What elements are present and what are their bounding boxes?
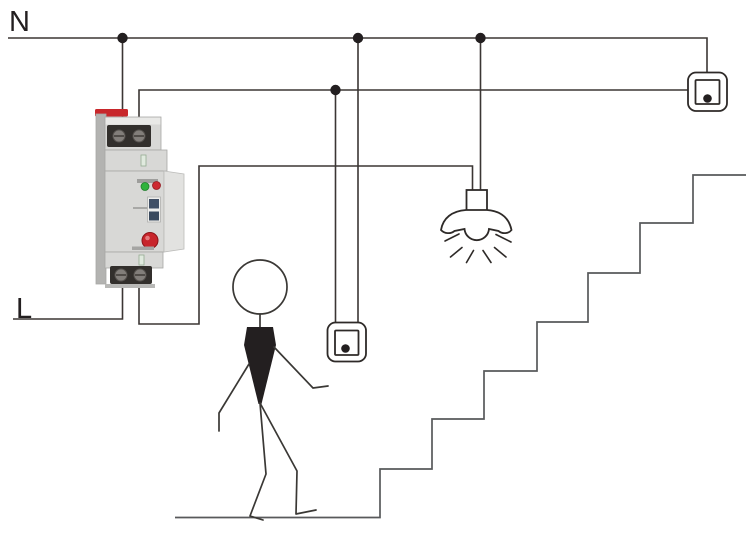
line-label: L — [16, 293, 32, 325]
person-arm-right — [274, 347, 328, 388]
pendant-lamp-icon — [441, 190, 512, 263]
button-highlight — [145, 236, 150, 241]
red-test-button — [142, 233, 158, 249]
vent-slot-bottom — [139, 255, 144, 265]
button-dot — [703, 94, 712, 103]
green-led-icon — [141, 183, 149, 191]
diagram-canvas: N L — [0, 0, 750, 535]
junction-dot-switch-neutral — [353, 33, 363, 43]
device-base-lip — [105, 284, 155, 288]
mode-slider-knob-lower — [149, 212, 159, 221]
neutral-label: N — [9, 6, 30, 38]
light-ray — [451, 248, 463, 258]
staircase-lighting-wiring-diagram: N L — [0, 0, 750, 535]
red-led-icon — [153, 182, 161, 190]
light-ray — [467, 251, 474, 263]
device-side-panel — [96, 114, 106, 284]
junction-dot-switch-control — [330, 85, 340, 95]
device-right-panel — [164, 171, 184, 252]
model-text-strip — [132, 247, 154, 251]
person-arm-left — [219, 364, 249, 431]
relay-output-wire — [139, 166, 473, 324]
light-ray — [483, 251, 491, 263]
junction-dot-relay-neutral — [117, 33, 127, 43]
light-ray — [495, 248, 507, 258]
device-step-housing — [105, 150, 167, 171]
push-button-middle-icon — [328, 323, 367, 362]
lamp-stem — [467, 190, 488, 211]
push-button-top-right-icon — [688, 73, 727, 112]
device-top-face — [106, 118, 161, 125]
button-dot — [341, 344, 350, 353]
light-ray — [496, 235, 511, 243]
light-ray — [445, 234, 459, 241]
person-icon — [219, 260, 328, 520]
vent-slot-top — [141, 155, 146, 166]
control-wire — [139, 90, 688, 132]
person-leg-front — [260, 403, 316, 514]
mode-slider-knob — [149, 199, 159, 209]
person-leg-back — [250, 403, 266, 520]
timer-relay-icon — [95, 109, 184, 288]
device-bottom-housing — [105, 252, 163, 268]
junction-dot-lamp-neutral — [475, 33, 485, 43]
person-head — [233, 260, 287, 314]
lamp-shade — [441, 210, 512, 240]
